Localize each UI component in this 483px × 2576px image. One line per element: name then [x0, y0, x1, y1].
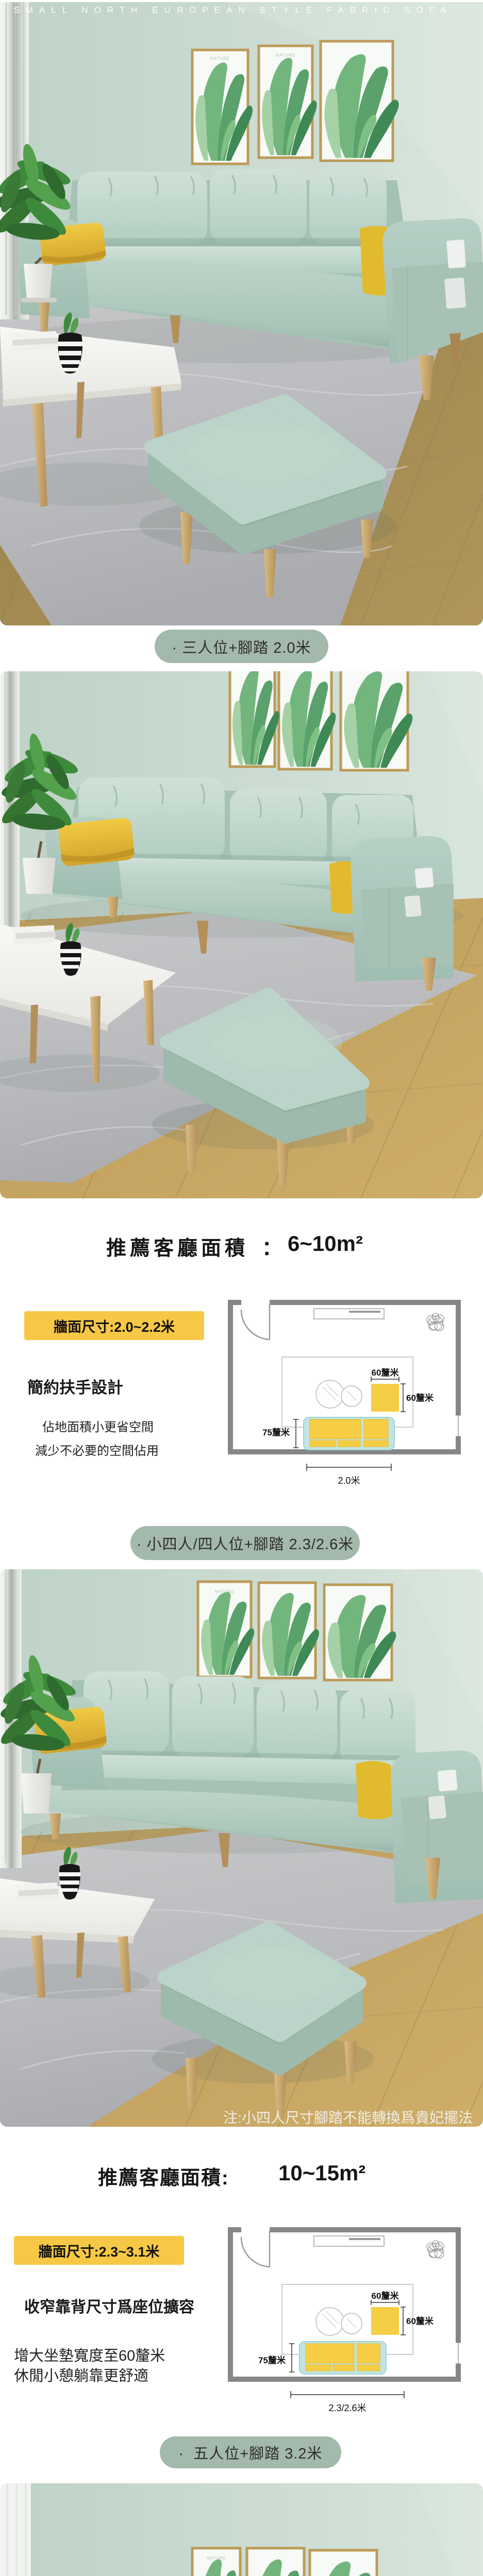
svg-text:2.0米: 2.0米: [338, 1476, 360, 1486]
svg-text:NATURE: NATURE: [207, 2556, 226, 2561]
svg-text:NATURE: NATURE: [210, 56, 230, 61]
svg-text:60釐米: 60釐米: [406, 1393, 434, 1403]
svg-text:75釐米: 75釐米: [262, 1427, 290, 1437]
svg-text:2.3/2.6米: 2.3/2.6米: [328, 2403, 366, 2413]
svg-text:注:小四人尺寸腳踏不能轉換爲貴妃擺法: 注:小四人尺寸腳踏不能轉換爲貴妃擺法: [223, 2110, 473, 2126]
svg-text:75釐米: 75釐米: [258, 2355, 286, 2365]
svg-text:60釐米: 60釐米: [406, 2316, 434, 2326]
svg-text:NATURE: NATURE: [276, 53, 295, 58]
svg-text:NATURE: NATURE: [215, 1589, 235, 1594]
svg-text:60釐米: 60釐米: [372, 2291, 399, 2301]
svg-text:60釐米: 60釐米: [372, 1367, 399, 1378]
svg-text:SMALL NORTH EUROPEAN STYLE FAB: SMALL NORTH EUROPEAN STYLE FABRIC SOFA: [14, 5, 453, 15]
